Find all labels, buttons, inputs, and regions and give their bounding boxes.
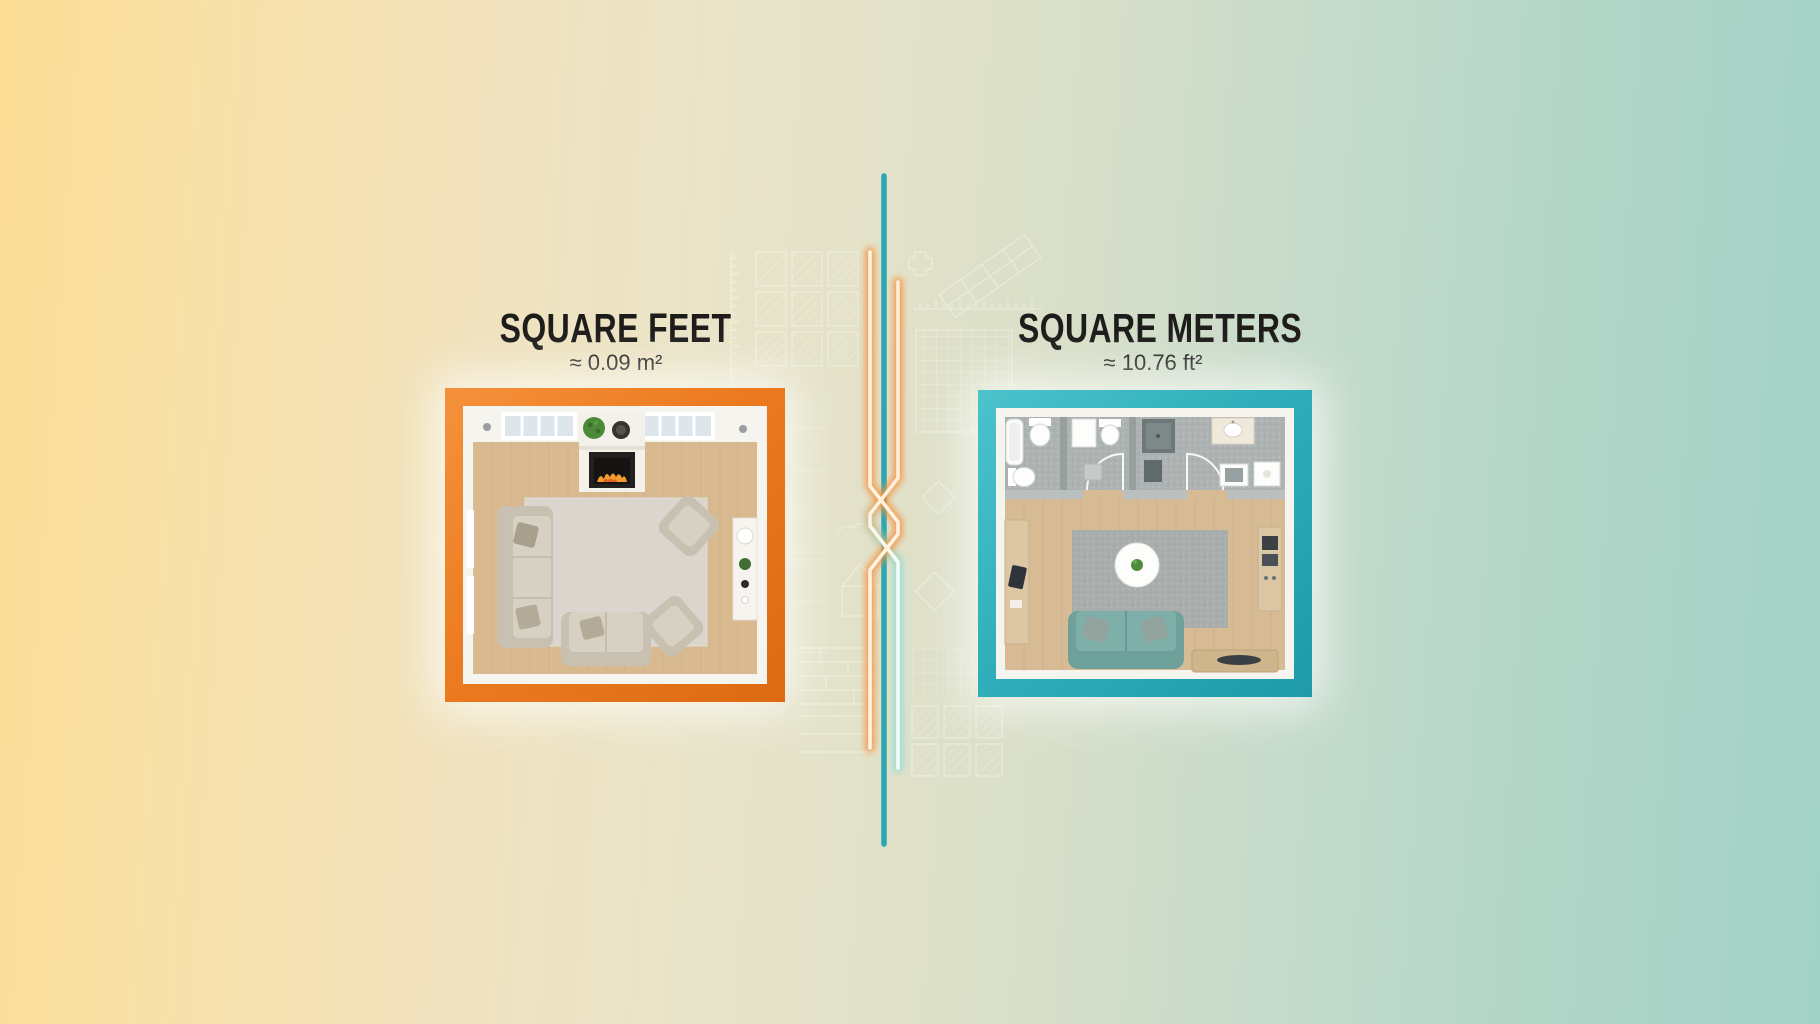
- kitchen-cabinet: [1258, 527, 1282, 611]
- bathtub: [1006, 419, 1023, 465]
- apartment-floorplan: [996, 408, 1294, 679]
- bath-mat: [1144, 460, 1162, 482]
- corner-unit: [1254, 462, 1280, 486]
- square-meters-heading-block: SQUARE METERS ≈ 10.76 ft²: [978, 308, 1328, 374]
- loveseat: [561, 612, 651, 666]
- square-meters-conversion-value: ≈ 10.76 ft²: [978, 352, 1328, 374]
- sink-unit: [1220, 464, 1248, 486]
- plus-sketch-icon: [909, 252, 932, 275]
- sofa: [497, 506, 553, 648]
- vanity-sink: [1212, 418, 1254, 444]
- mantel-plant: [583, 417, 605, 439]
- round-coffee-table: [1115, 543, 1159, 587]
- diamond-sketch-icon: [915, 572, 953, 610]
- toilet: [1029, 418, 1051, 446]
- diamond-sketch-icon: [922, 481, 955, 514]
- cloud-scribble-sketch-icon: [836, 524, 878, 535]
- skylight-window: [639, 412, 715, 440]
- side-table: [1192, 650, 1278, 672]
- shower: [1142, 419, 1175, 453]
- braided-neon-divider: [840, 160, 960, 860]
- sideboard-desk: [1005, 520, 1029, 644]
- sofa: [1068, 611, 1184, 669]
- square-feet-floorplan-frame: [445, 388, 785, 702]
- square-meters-title: SQUARE METERS: [1018, 308, 1302, 349]
- square-feet-heading-block: SQUARE FEET ≈ 0.09 m²: [441, 308, 791, 374]
- neon-strand-core: [870, 282, 898, 768]
- mantel-bowl: [612, 421, 630, 439]
- wall-speaker: [739, 425, 747, 433]
- square-feet-vs-square-meters-infographic: SQUARE FEET ≈ 0.09 m² SQUARE METERS ≈ 10…: [0, 0, 1820, 1024]
- side-window: [467, 576, 474, 634]
- hatched-tile-grid-sketch-icon: [912, 706, 1002, 776]
- toilet: [1099, 419, 1121, 445]
- console-table: [733, 518, 757, 620]
- skylight-window: [501, 412, 577, 440]
- side-window: [467, 510, 474, 568]
- washer: [1072, 419, 1096, 447]
- neon-strand-glow: [870, 282, 898, 768]
- wall-plan-sketch-icon: [792, 428, 826, 652]
- neon-strand-core: [870, 252, 898, 748]
- bathroom-zone: [1005, 417, 1285, 499]
- square-meters-floorplan-frame: [978, 390, 1312, 697]
- house-outline-sketch-icon: [842, 564, 878, 616]
- square-feet-title: SQUARE FEET: [500, 308, 732, 349]
- square-feet-conversion-value: ≈ 0.09 m²: [441, 352, 791, 374]
- living-room-floorplan: [463, 406, 767, 684]
- brick-pattern-sketch-icon: [800, 648, 876, 752]
- toilet: [1008, 468, 1035, 487]
- bath-cabinet: [1084, 464, 1102, 480]
- neon-strand-glow: [870, 252, 898, 748]
- wall-speaker: [483, 423, 491, 431]
